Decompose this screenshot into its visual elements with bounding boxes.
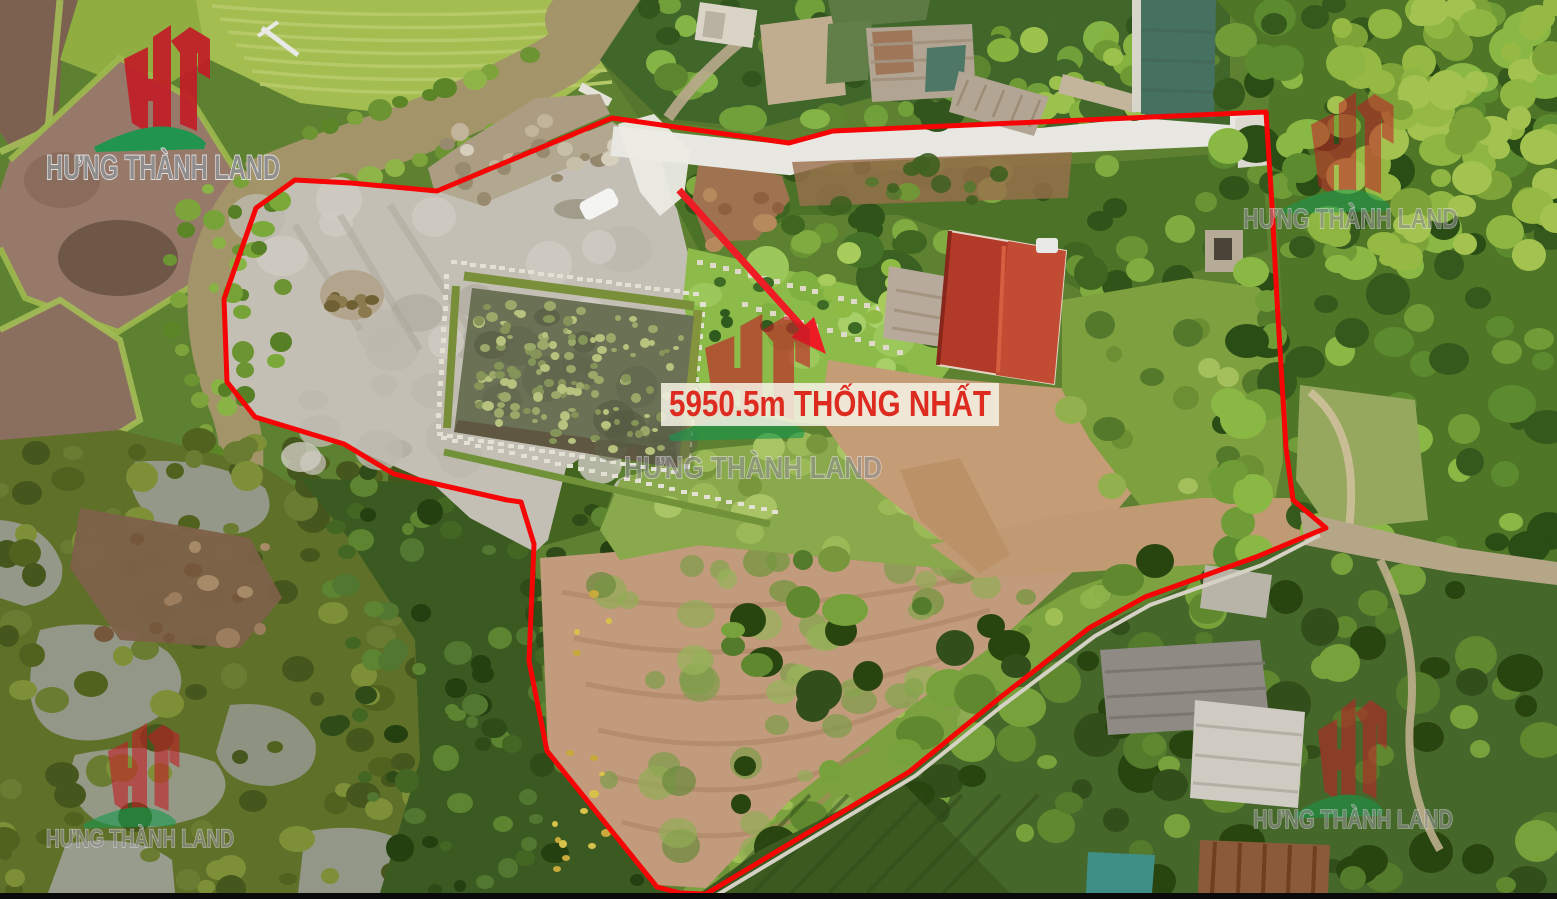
svg-text:HƯNG THÀNH LAND: HƯNG THÀNH LAND bbox=[624, 450, 882, 485]
svg-text:5950.5m THỐNG NHẤT: 5950.5m THỐNG NHẤT bbox=[669, 382, 991, 424]
svg-text:HƯNG THÀNH LAND: HƯNG THÀNH LAND bbox=[46, 149, 280, 187]
svg-text:HƯNG THÀNH LAND: HƯNG THÀNH LAND bbox=[1253, 804, 1453, 834]
svg-text:HƯNG THÀNH LAND: HƯNG THÀNH LAND bbox=[1243, 203, 1458, 234]
svg-text:HƯNG THÀNH LAND: HƯNG THÀNH LAND bbox=[46, 824, 234, 853]
